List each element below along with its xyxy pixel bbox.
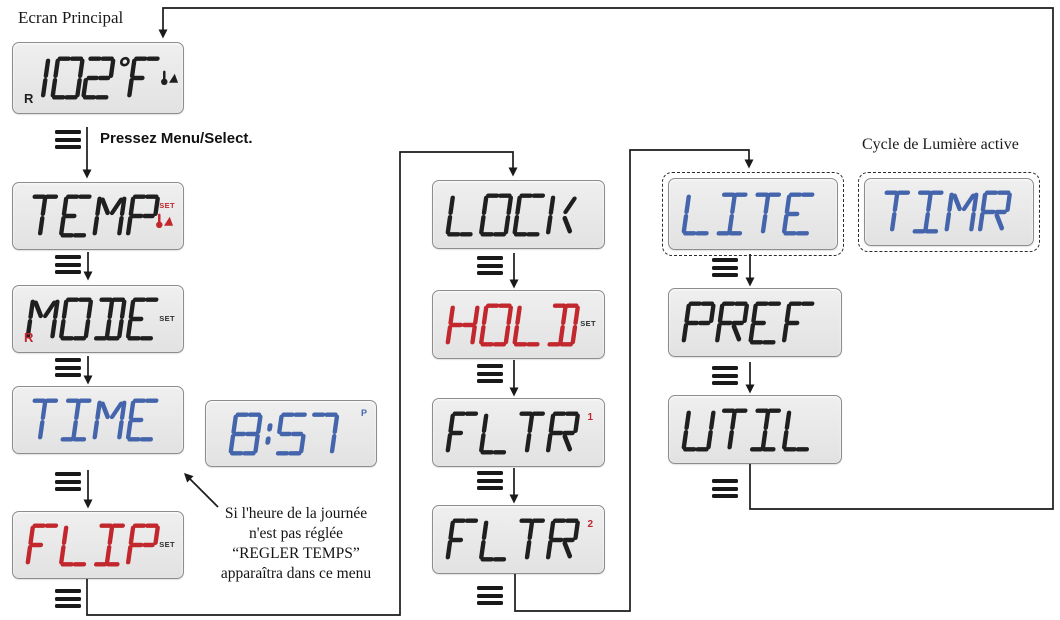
segment-display-pref (681, 301, 824, 345)
segment-display-fltr2 (445, 518, 588, 562)
segment-display-fltr1 (445, 411, 588, 455)
time-note-line: “REGLER TEMPS” (186, 544, 406, 564)
segment-display-time (25, 398, 168, 442)
thermometer-arrow-icon (155, 212, 174, 230)
menu-select-button-icon (55, 589, 81, 608)
segment-display-mode (25, 297, 168, 341)
menu-select-button-icon (55, 130, 81, 149)
set-indicator: SET (580, 320, 596, 328)
menu-select-button-icon (712, 366, 738, 385)
menu-select-button-icon (477, 364, 503, 383)
menu-select-button-icon (477, 586, 503, 605)
lcd-screen-flip: SET (12, 511, 184, 579)
menu-select-button-icon (55, 472, 81, 491)
lcd-screen-lock (432, 180, 605, 249)
light-cycle-active-label: Cycle de Lumière active (862, 136, 1019, 154)
lcd-screen-time (12, 386, 184, 454)
lcd-screen-temp: SET (12, 182, 184, 250)
thermometer-arrow-icon (160, 69, 179, 87)
lcd-screen-lite (668, 178, 838, 250)
menu-select-button-icon (712, 258, 738, 277)
lcd-screen-hold: SET (432, 290, 605, 359)
segment-display-main (28, 56, 169, 100)
heat-thermometer-icon (160, 69, 179, 91)
segment-display-flip (25, 523, 168, 567)
set-indicator: SET (159, 202, 175, 210)
segment-display-lite (681, 192, 824, 236)
segment-display-clock (228, 412, 344, 456)
segment-display-temp (25, 194, 168, 238)
time-not-set-note: Si l'heure de la journée n'est pas réglé… (186, 504, 406, 584)
menu-select-button-icon (55, 358, 81, 377)
segment-display-util (681, 408, 824, 452)
filter-1-indicator: 1 (587, 413, 593, 423)
lcd-screen-util (668, 395, 842, 464)
menu-select-button-icon (55, 255, 81, 274)
pm-indicator: P (361, 409, 367, 418)
heat-thermometer-icon (155, 212, 174, 234)
time-note-line: apparaîtra dans ce menu (186, 564, 406, 584)
menu-select-button-icon (477, 256, 503, 275)
press-menu-label: Pressez Menu/Select. (100, 130, 253, 147)
lcd-screen-pref (668, 288, 842, 357)
lcd-screen-clock: P (205, 400, 377, 467)
time-note-line: n'est pas réglée (186, 524, 406, 544)
menu-select-button-icon (712, 479, 738, 498)
main-screen-label: Ecran Principal (18, 8, 123, 28)
filter-2-indicator: 2 (587, 520, 593, 530)
lcd-screen-timer (864, 178, 1034, 246)
lcd-screen-main-temperature: R (12, 42, 184, 114)
segment-display-timr (877, 190, 1020, 234)
range-indicator-r: R (24, 331, 33, 344)
lcd-screen-filter2: 2 (432, 505, 605, 574)
segment-display-hold (445, 303, 588, 347)
segment-display-lock (445, 193, 588, 237)
lcd-screen-mode: SETR (12, 285, 184, 353)
menu-select-button-icon (477, 471, 503, 490)
menu-flow-diagram: Ecran Principal Pressez Menu/Select. Cyc… (0, 0, 1060, 620)
set-indicator: SET (159, 541, 175, 549)
lcd-screen-filter1: 1 (432, 398, 605, 467)
time-note-line: Si l'heure de la journée (186, 504, 406, 524)
set-indicator: SET (159, 315, 175, 323)
range-indicator-r: R (24, 92, 33, 105)
